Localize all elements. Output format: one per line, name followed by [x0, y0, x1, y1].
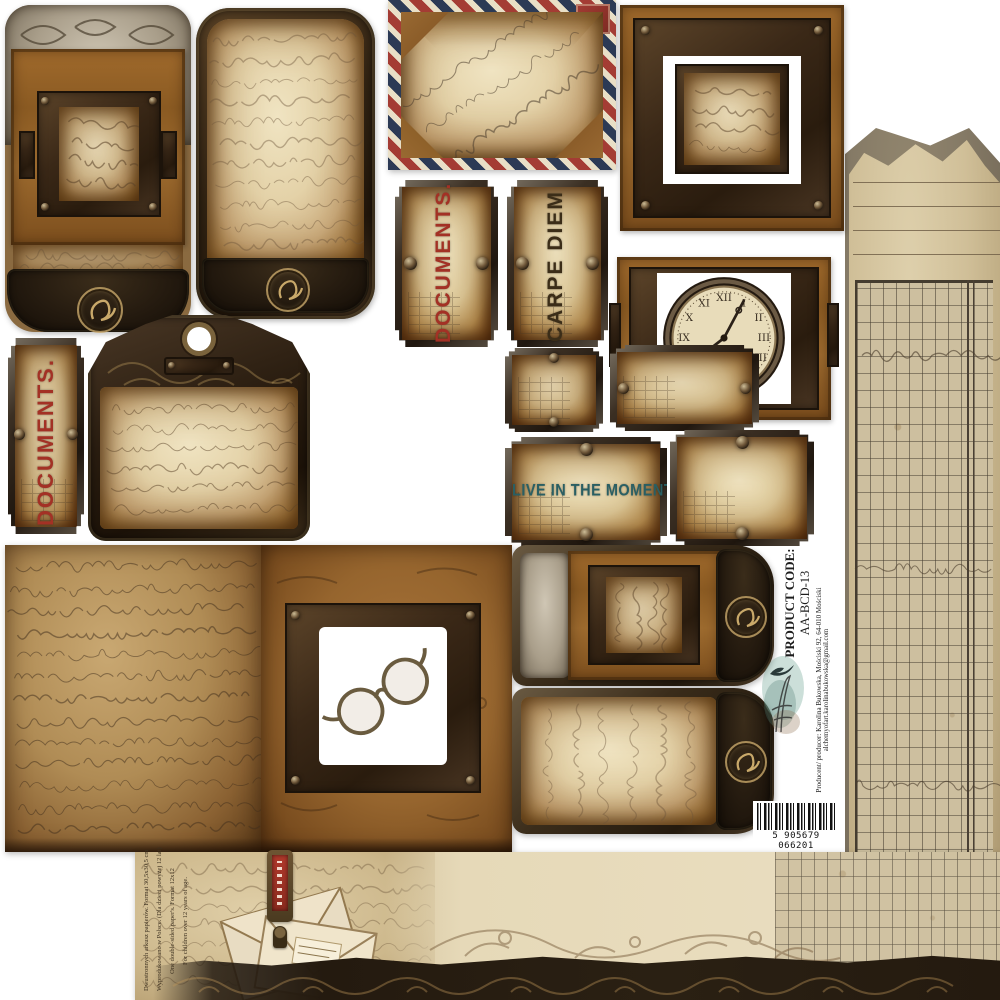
clock-numeral: II [755, 312, 763, 324]
small-photo-frame [675, 64, 789, 174]
rivet [580, 528, 593, 541]
carpe-diem-label: CARPE DIEM [544, 194, 570, 342]
ledger-ruled-lines [853, 178, 1000, 278]
product-code-value: AA-BCD-13 [798, 545, 813, 661]
rivet [586, 257, 599, 270]
rivet [14, 429, 25, 440]
tag-script-paper [521, 697, 717, 825]
wooden-frame-top-right [620, 5, 844, 231]
small-plaque-1 [505, 348, 603, 432]
live-moment-label: LIVE IN THE MOMENT [512, 482, 660, 505]
frame-screw [814, 26, 823, 35]
rivet [516, 257, 529, 270]
round-spectacles [319, 627, 447, 765]
corner-triangle [401, 114, 445, 158]
metal-clip-plate [164, 357, 234, 375]
alchemy-of-art-logo [756, 648, 808, 740]
rivet [476, 257, 489, 270]
plaque-face: LIVE IN THE MOMENT [512, 444, 660, 540]
plaque-face [617, 352, 752, 424]
frame-screw [41, 97, 49, 105]
clock-numeral: X [686, 312, 694, 324]
frame-screw [814, 201, 823, 210]
glasses-frame [285, 603, 481, 793]
clock-numeral: IX [678, 332, 690, 344]
frame-screw [149, 203, 157, 211]
documents-plaque-left: DOCUMENTS. [8, 338, 84, 534]
clip-screw [168, 362, 175, 369]
monogram-medallion [725, 741, 767, 783]
white-mat-window [663, 56, 801, 184]
barcode-digits: 5 905679 066201 [753, 831, 839, 851]
handwriting-squiggles [100, 387, 298, 529]
folio-panel [5, 545, 512, 852]
handwriting-squiggles [59, 107, 139, 201]
horizontal-tag-framed [512, 545, 774, 686]
clock-numeral: XII [716, 292, 732, 304]
corner-triangle [553, 108, 603, 158]
red-spine-label [272, 855, 288, 911]
edge-text-line3: One double-sided paper's. Format 12x12 [169, 851, 179, 991]
envelope-paper [401, 12, 603, 158]
rivet [618, 383, 629, 394]
tag-script-paper [207, 19, 364, 265]
rivet [549, 417, 559, 427]
horizontal-tag-plain [512, 688, 774, 834]
scrapbook-sheet-product-photo: Dwustronnych arkusz papierów. Format 30,… [0, 0, 1000, 1000]
clock-numeral: XI [698, 298, 710, 310]
handwriting-squiggles [5, 545, 261, 852]
edge-text-line1: Dwustronnych arkusz papierów. Format 30,… [143, 851, 153, 991]
sepia-floral-engraving [425, 898, 845, 968]
handwriting-squiggles [521, 697, 717, 825]
folio-bottom-edge [5, 838, 512, 852]
rivet [404, 257, 417, 270]
clip-screw [223, 362, 230, 369]
product-code-label: PRODUCT CODE: [782, 545, 798, 661]
monogram-medallion [266, 268, 310, 312]
frame-side-tab [827, 303, 839, 367]
edge-text-line2: Wyprodukowano w Polsce. (Dla dzieci powy… [156, 851, 166, 991]
product-code-block: PRODUCT CODE: AA-BCD-13 [782, 545, 816, 661]
dog-tag-hanging [88, 315, 310, 541]
engraved-end-cap [520, 553, 570, 678]
producer-info-block: Producent/ producer: Karolina Bukowska, … [815, 554, 833, 826]
frame-screw [291, 611, 300, 620]
rivet [736, 436, 749, 449]
producer-line: Producent/ producer: Karolina Bukowska, … [815, 554, 823, 826]
documents-plaque-top: DOCUMENTS. [395, 180, 498, 347]
folio-wood-page [261, 545, 512, 852]
frame-screw [41, 203, 49, 211]
metal-photo-frame [588, 565, 700, 665]
frame-screw [149, 97, 157, 105]
bookplate-frame [267, 850, 293, 922]
red-label-worn-lettering [277, 861, 282, 905]
plaque-face [512, 355, 596, 425]
barcode: 5 905679 066201 [753, 801, 839, 845]
handwriting-squiggles [207, 19, 364, 265]
framed-aged-paper [684, 73, 780, 165]
ornate-black-bottom [202, 258, 369, 313]
rounded-tag-large [196, 8, 375, 319]
frame-screw [291, 776, 300, 785]
tag-hole [187, 327, 211, 351]
wood-mid-panel [568, 551, 720, 680]
bottom-strip-paper: Dwustronnych arkusz papierów. Format 30,… [135, 852, 1000, 1000]
ornate-tag-large-left [5, 5, 191, 332]
live-in-the-moment-plaque: LIVE IN THE MOMENT [505, 437, 667, 547]
frame-screw [641, 26, 650, 35]
documents-label: DOCUMENTS. [33, 353, 59, 531]
keyhole-pendant [273, 926, 287, 948]
folio-script-page [5, 545, 261, 852]
rust-inner-frame [633, 18, 831, 218]
rivet [736, 527, 749, 540]
airmail-envelope [388, 0, 616, 170]
framed-script-paper [59, 107, 139, 201]
rivet [67, 429, 78, 440]
latch-plate-right [161, 131, 177, 179]
tag-script-paper [100, 387, 298, 529]
documents-label: DOCUMENTS. [432, 193, 458, 343]
glasses-window [319, 627, 447, 765]
handwriting-squiggles [606, 577, 682, 653]
metal-photo-frame [37, 91, 161, 217]
monogram-medallion [77, 287, 123, 333]
frame-screw [641, 201, 650, 210]
rivet [580, 443, 593, 456]
rivet [740, 383, 751, 394]
monogram-medallion [725, 596, 767, 638]
small-plaque-2 [610, 345, 759, 431]
clock-numeral: III [758, 332, 770, 344]
edge-text-line4: For children over 12 years of age. [182, 851, 192, 991]
latch-plate-left [19, 131, 35, 179]
wood-panel [11, 49, 185, 245]
small-plaque-3 [670, 430, 814, 546]
framed-script-paper [606, 577, 682, 653]
frame-screw [466, 776, 475, 785]
handwriting-squiggles [684, 73, 780, 165]
barcode-bars [757, 803, 835, 830]
plaque-face [677, 437, 807, 539]
email-line: alchemyofart.karolinabukowska@gmail.com [823, 554, 830, 826]
carpe-diem-plaque: CARPE DIEM [507, 180, 608, 347]
frame-screw [466, 611, 475, 620]
rivet [549, 353, 559, 363]
